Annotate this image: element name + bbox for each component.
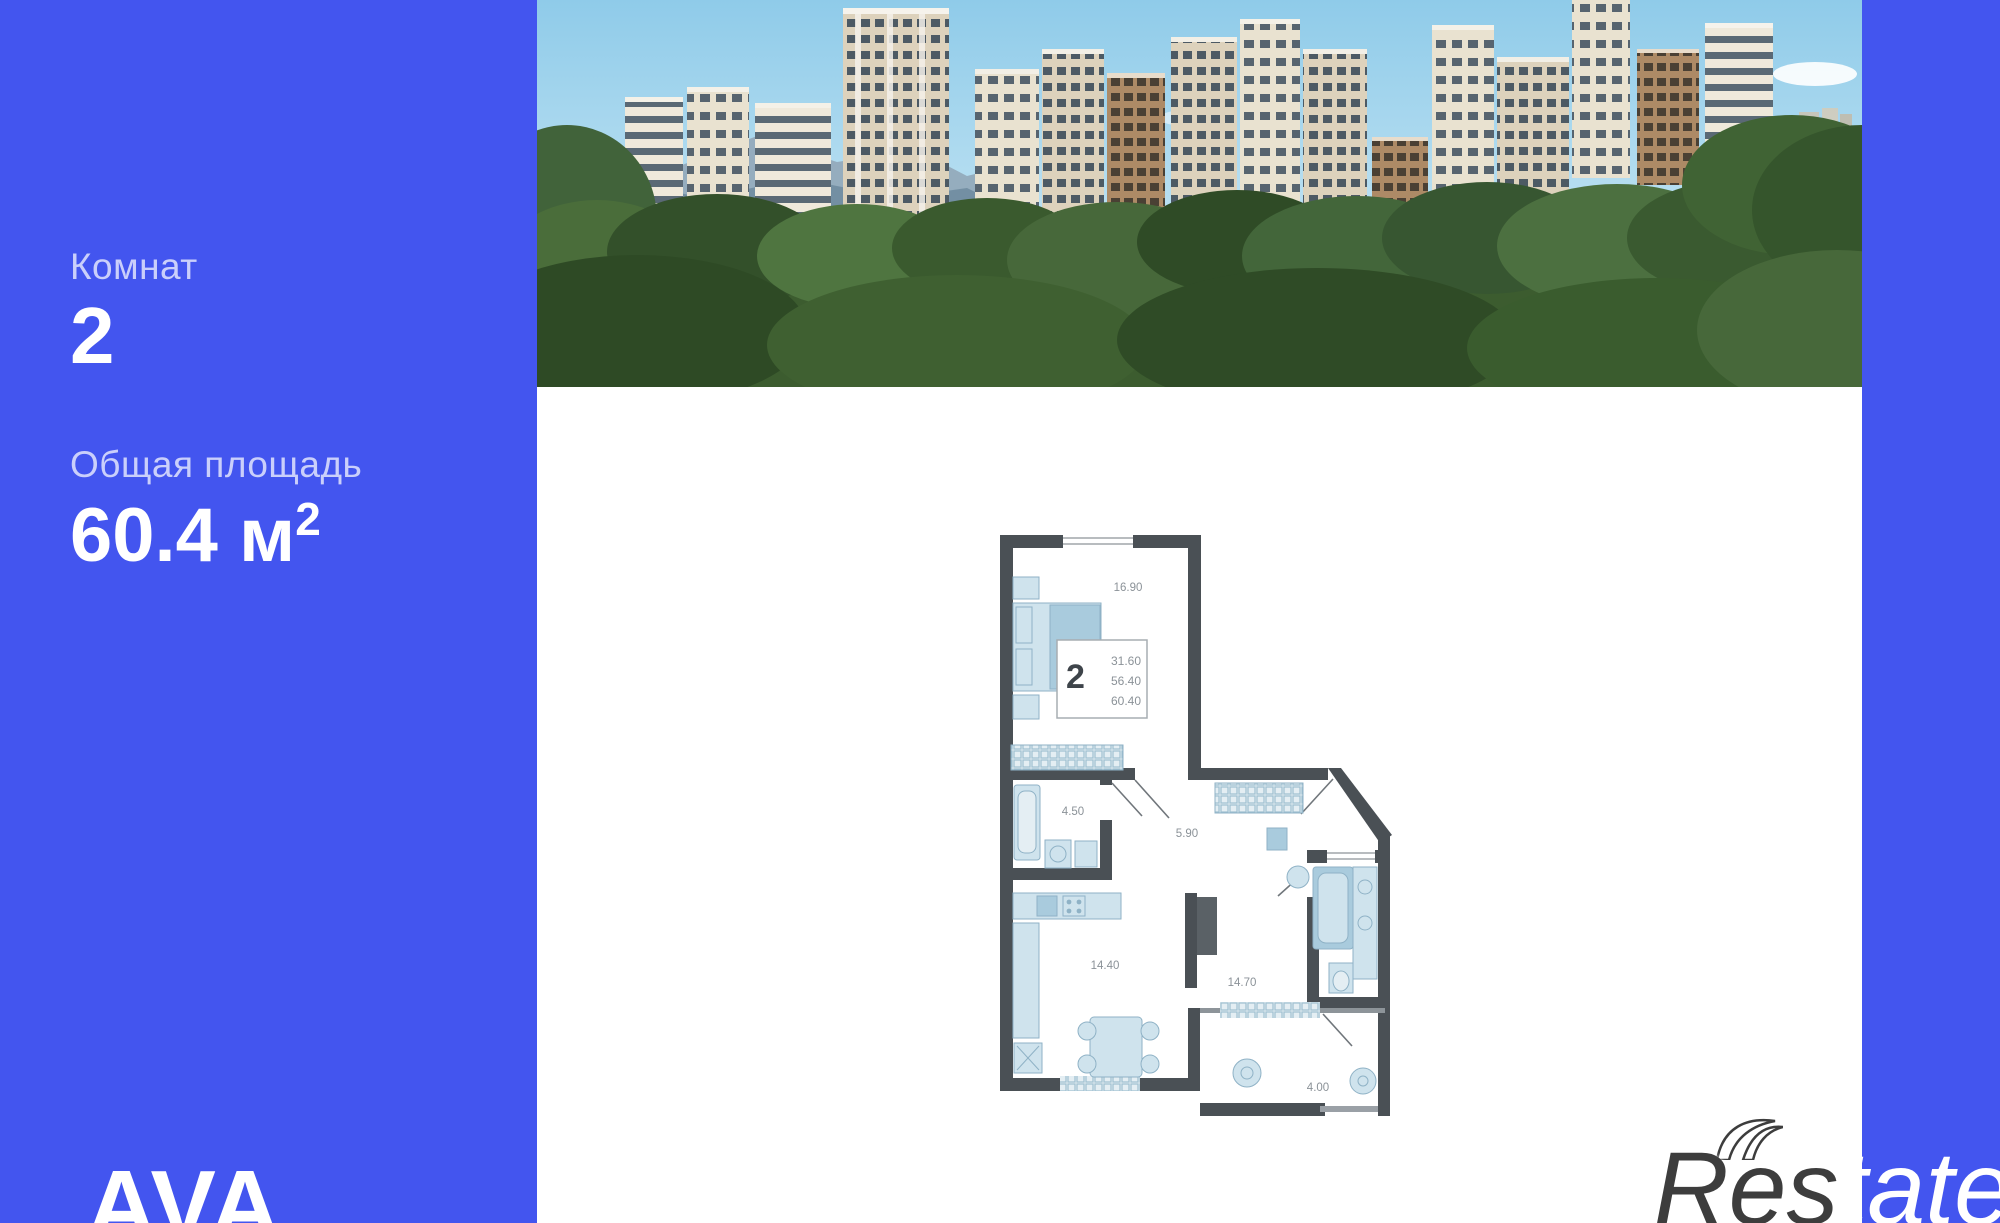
- wardrobe: [1011, 745, 1123, 770]
- label-hallway: 5.90: [1176, 828, 1198, 840]
- label-living: 14.70: [1228, 977, 1257, 989]
- hall-closet: [1215, 783, 1303, 813]
- total-area-stat: Общая площадь 60.4 м2: [70, 444, 362, 574]
- sidebar: Комнат 2 Общая площадь 60.4 м2: [70, 0, 500, 1223]
- chair: [1141, 1055, 1159, 1073]
- apartment-listing-card: Комнат 2 Общая площадь 60.4 м2 AVA: [0, 0, 2000, 1223]
- rooms-label: Комнат: [70, 246, 198, 288]
- round-sink: [1287, 866, 1309, 888]
- plant: [1350, 1068, 1376, 1094]
- info-area-no-balcony: 56.40: [1111, 674, 1141, 688]
- ava-developer-logo: AVA: [86, 1156, 281, 1223]
- building-photo: [537, 0, 1862, 387]
- chair: [1078, 1022, 1096, 1040]
- label-kitchen: 14.40: [1091, 960, 1120, 972]
- cloud: [1773, 62, 1857, 86]
- nightstand: [1013, 577, 1039, 599]
- content-panel: 2 31.60 56.40 60.40 16.90 4.50 5.90 14.4…: [537, 0, 1862, 1223]
- info-total-area: 60.40: [1111, 694, 1141, 708]
- plan-info-box: 2 31.60 56.40 60.40: [1057, 640, 1147, 718]
- fridge: [1013, 923, 1039, 1038]
- rooms-stat: Комнат 2: [70, 246, 198, 376]
- restate-watermark-right: tate: [1839, 1131, 2000, 1223]
- total-area-label: Общая площадь: [70, 444, 362, 486]
- floor-plan: 2 31.60 56.40 60.40 16.90 4.50 5.90 14.4…: [995, 525, 1425, 1125]
- square-superscript: 2: [295, 493, 321, 545]
- info-living-area: 31.60: [1111, 654, 1141, 668]
- label-bathroom: 4.50: [1062, 806, 1084, 818]
- building-photo-scene: [537, 0, 1862, 387]
- restate-watermark-left: Res: [1654, 1131, 1839, 1223]
- vanity: [1353, 867, 1377, 979]
- pouf: [1233, 1059, 1261, 1087]
- nightstand-2: [1013, 695, 1039, 719]
- shoe-cabinet: [1267, 828, 1287, 850]
- label-balcony: 4.00: [1307, 1082, 1329, 1094]
- label-bedroom: 16.90: [1114, 582, 1143, 594]
- chair: [1078, 1055, 1096, 1073]
- chair: [1141, 1022, 1159, 1040]
- dining-table: [1090, 1017, 1142, 1077]
- sink: [1075, 841, 1097, 867]
- total-area-value: 60.4 м2: [70, 496, 362, 574]
- restate-watermark: Restate: [1654, 1137, 2000, 1223]
- rooms-value: 2: [70, 296, 198, 376]
- info-rooms: 2: [1066, 658, 1085, 696]
- washing-machine: [1045, 840, 1071, 868]
